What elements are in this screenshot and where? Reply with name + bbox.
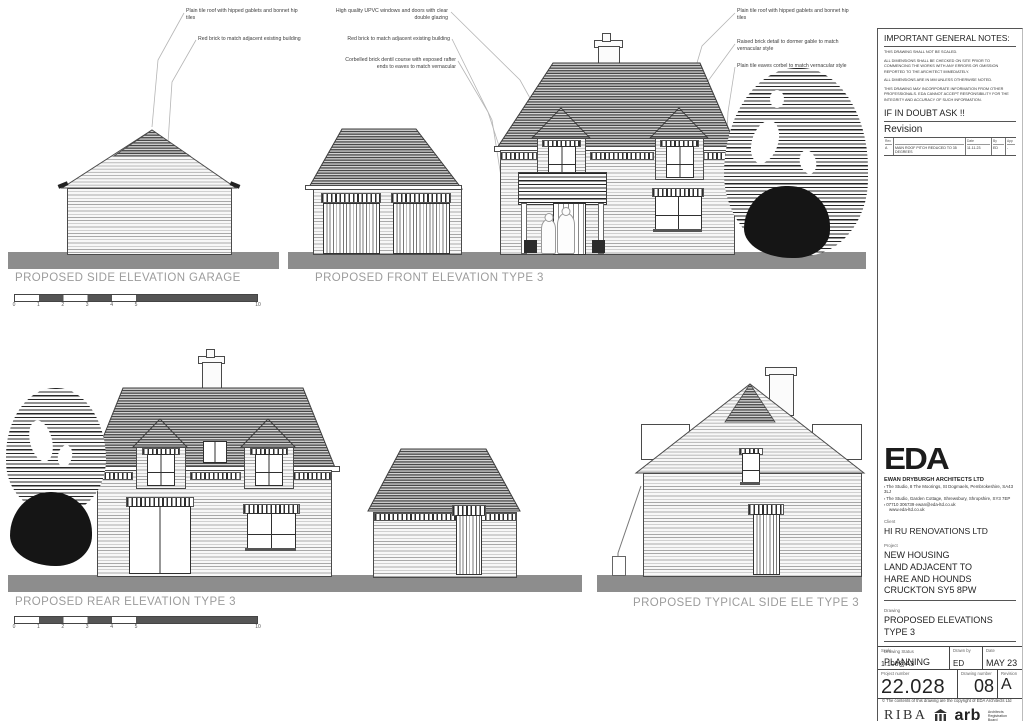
revision-value-app: - bbox=[1007, 146, 1008, 150]
scale-tick: 2 bbox=[61, 302, 64, 308]
revision-header-description bbox=[895, 139, 964, 145]
garage-door-lintel-right bbox=[391, 193, 451, 203]
scale-tick: 5 bbox=[135, 624, 138, 630]
firm-website: www.eda-ltd.co.uk bbox=[889, 507, 1016, 512]
note-item: THIS DRAWING MAY INCORPORATE INFORMATION… bbox=[884, 87, 1016, 104]
arb-logo: arb bbox=[954, 707, 980, 721]
revision-value: A bbox=[1001, 676, 1012, 693]
general-notes-section: IMPORTANT GENERAL NOTES: THIS DRAWING SH… bbox=[878, 29, 1022, 156]
firm-address-2: The Studio, Garden Cottage, Shrewsbury, … bbox=[884, 496, 1016, 501]
side-window-sill bbox=[740, 482, 760, 485]
scale-tick: 10 bbox=[255, 624, 261, 630]
dormer-roof-left bbox=[530, 106, 592, 140]
side-door bbox=[753, 514, 780, 575]
scale-label: Scale bbox=[881, 648, 946, 653]
title-block: IMPORTANT GENERAL NOTES: THIS DRAWING SH… bbox=[877, 28, 1023, 721]
note-item: ALL DIMENSIONS ARE IN MM UNLESS OTHERWIS… bbox=[884, 78, 1016, 84]
if-in-doubt-note: IF IN DOUBT ASK !! bbox=[884, 108, 1016, 122]
ground-bar-side bbox=[597, 575, 862, 592]
annotation-roof-house: Plain tile roof with hipped gablets and … bbox=[737, 8, 855, 22]
label-front-elevation: PROPOSED FRONT ELEVATION TYPE 3 bbox=[315, 272, 544, 284]
garage-gablet-roof bbox=[60, 128, 238, 190]
annotation-upvc-windows: High quality UPVC windows and doors with… bbox=[330, 8, 448, 22]
riba-crest-icon bbox=[934, 709, 947, 721]
revision-table: Rev A MAIN ROOF PITCH REDUCED TO 35 DEGR… bbox=[884, 138, 1016, 156]
annotation-brick-garage: Red brick to match adjacent existing bui… bbox=[198, 36, 323, 43]
scale-tick: 0 bbox=[13, 302, 16, 308]
drawing-number-cell: Drawing number 08 bbox=[958, 670, 998, 698]
revision-title: Revision bbox=[884, 122, 1016, 138]
planter-right bbox=[592, 240, 605, 253]
drawing-label: Drawing bbox=[884, 608, 1016, 613]
scale-tick: 4 bbox=[110, 302, 113, 308]
project-label: Project bbox=[884, 543, 1016, 548]
drawing-sheet: Plain tile roof with hipped gablets and … bbox=[0, 0, 1024, 721]
revision-header-by: By bbox=[993, 139, 1004, 145]
scale-bar bbox=[14, 294, 258, 302]
scale-value: 1:100@A3 bbox=[881, 661, 914, 668]
rear-dormer-window-left bbox=[147, 454, 175, 486]
date-cell: Date MAY 23 bbox=[983, 647, 1022, 670]
garage-side-wall bbox=[67, 188, 232, 255]
scale-tick: 1 bbox=[37, 302, 40, 308]
project-number-cell: Project number 22.028 bbox=[878, 670, 958, 698]
scale-tick: 3 bbox=[86, 624, 89, 630]
scale-row: Scale 1:100@A3 Drawn by ED Date MAY 23 bbox=[878, 646, 1022, 670]
window-sill bbox=[653, 229, 702, 232]
rear-window-sill bbox=[245, 548, 296, 551]
porch-pedestal bbox=[612, 556, 626, 576]
annotation-roof-garage: Plain tile roof with hipped gablets and … bbox=[186, 8, 304, 22]
revision-header-app: App bbox=[1007, 139, 1015, 145]
date-label: Date bbox=[986, 648, 1019, 653]
revision-cell-date: Date 11.11.23 bbox=[966, 138, 992, 155]
scale-tick: 3 bbox=[86, 302, 89, 308]
revision-cell-app: App - bbox=[1006, 138, 1016, 155]
chimney-pot bbox=[602, 33, 611, 42]
project-number-value: 22.028 bbox=[881, 676, 945, 698]
note-item: ALL DIMENSIONS SHALL BE CHECKED ON SITE … bbox=[884, 59, 1016, 76]
porch-canopy bbox=[518, 172, 607, 205]
revision-cell-description: MAIN ROOF PITCH REDUCED TO 35 DEGREES bbox=[894, 138, 966, 155]
scale-bar-top: 0 1 2 3 4 5 10 bbox=[14, 294, 258, 312]
eaves-dentil-left bbox=[500, 152, 537, 160]
rear-rooflight-window bbox=[203, 441, 227, 463]
label-side-elevation-garage: PROPOSED SIDE ELEVATION GARAGE bbox=[15, 272, 241, 284]
planter-left bbox=[524, 240, 537, 253]
note-item: THIS DRAWING SHALL NOT BE SCALED. bbox=[884, 50, 1016, 56]
label-rear-elevation: PROPOSED REAR ELEVATION TYPE 3 bbox=[15, 596, 236, 608]
dormer-window-right bbox=[666, 146, 694, 178]
dormer-roof-right bbox=[648, 106, 710, 140]
rear-eaves-dentil-mid bbox=[190, 472, 241, 480]
small-garage-door bbox=[456, 515, 482, 575]
firm-address-1: The Studio, 8 The Moorings, St Dogmaels,… bbox=[884, 484, 1016, 494]
revision-cell-rev: Rev A bbox=[884, 138, 894, 155]
label-typical-side-elevation: PROPOSED TYPICAL SIDE ELE TYPE 3 bbox=[633, 597, 859, 609]
ground-floor-window bbox=[655, 196, 702, 231]
revision-cell: Revision A bbox=[998, 670, 1022, 698]
eda-logo: EDA bbox=[884, 445, 1016, 472]
tree-branch-gap bbox=[770, 90, 784, 108]
scale-cell: Scale 1:100@A3 bbox=[878, 647, 950, 670]
rear-dormer-roof-right bbox=[239, 417, 297, 449]
person-figure-2 bbox=[557, 213, 575, 254]
firm-name: EWAN DRYBURGH ARCHITECTS LTD bbox=[884, 477, 1016, 483]
revision-value-description: MAIN ROOF PITCH REDUCED TO 35 DEGREES bbox=[895, 146, 957, 154]
scale-bar-bottom: 0 1 2 3 4 5 10 bbox=[14, 616, 258, 634]
scale-tick: 0 bbox=[13, 624, 16, 630]
scale-tick: 10 bbox=[255, 302, 261, 308]
revision-header-date: Date bbox=[967, 139, 990, 145]
revision-value-date: 11.11.23 bbox=[967, 146, 980, 150]
arb-caption: Architects Registration Board bbox=[988, 710, 1007, 721]
french-doors bbox=[129, 506, 191, 574]
project-name: NEW HOUSING LAND ADJACENT TO HARE AND HO… bbox=[884, 550, 1016, 601]
drawn-by-label: Drawn by bbox=[953, 648, 979, 653]
number-row: Project number 22.028 Drawing number 08 … bbox=[878, 669, 1022, 699]
scale-tick: 5 bbox=[135, 302, 138, 308]
small-garage-dentil bbox=[374, 513, 516, 521]
revision-cell-by: By ED bbox=[992, 138, 1006, 155]
drawing-name: PROPOSED ELEVATIONS TYPE 3 bbox=[884, 615, 1016, 642]
scale-tick: 4 bbox=[110, 624, 113, 630]
garage-door-lintel-left bbox=[321, 193, 381, 203]
riba-logo: RIBA bbox=[884, 708, 927, 721]
rear-eaves-dentil-right bbox=[293, 472, 331, 480]
revision-header-rev: Rev bbox=[885, 139, 892, 145]
revision-value-rev: A bbox=[885, 146, 887, 150]
annotation-dormer-brick: Raised brick detail to dormer gable to m… bbox=[737, 39, 859, 53]
scale-bar bbox=[14, 616, 258, 624]
annotation-brick-house: Red brick to match adjacent existing bui… bbox=[328, 36, 450, 43]
drawn-by-value: ED bbox=[953, 659, 964, 668]
drawn-by-cell: Drawn by ED bbox=[950, 647, 983, 670]
client-name: HI RU RENOVATIONS LTD bbox=[884, 526, 1016, 536]
small-garage-wall bbox=[373, 512, 517, 578]
client-label: Client bbox=[884, 519, 1016, 524]
notes-title: IMPORTANT GENERAL NOTES: bbox=[884, 33, 1016, 47]
revision-value-by: ED bbox=[993, 146, 998, 150]
firm-section: EDA EWAN DRYBURGH ARCHITECTS LTD The Stu… bbox=[884, 445, 1016, 667]
scale-tick: 2 bbox=[61, 624, 64, 630]
garage-hipped-roof bbox=[306, 127, 464, 191]
annotation-dentil-course: Corbelled brick dentil course with expos… bbox=[334, 57, 456, 71]
logos-row: RIBA arb Architects Registration Board bbox=[884, 707, 1018, 721]
rear-chimney-pot bbox=[206, 349, 215, 358]
tree-bush bbox=[744, 186, 830, 258]
rear-ground-window bbox=[247, 513, 296, 550]
rear-dormer-window-right bbox=[255, 454, 283, 486]
small-garage-roof bbox=[366, 447, 522, 513]
scale-tick: 1 bbox=[37, 624, 40, 630]
eaves-dentil-mid bbox=[590, 152, 654, 160]
rear-dormer-roof-left bbox=[131, 417, 189, 449]
copyright-note: © The contents of this drawing are the c… bbox=[882, 698, 1018, 703]
side-first-floor-window bbox=[742, 453, 760, 484]
person-figure-1 bbox=[541, 219, 556, 254]
date-value: MAY 23 bbox=[986, 658, 1017, 668]
drawing-number-value: 08 bbox=[961, 676, 994, 697]
rear-tree-bush bbox=[10, 492, 92, 566]
garage-door-right bbox=[393, 203, 450, 254]
garage-door-left bbox=[323, 203, 380, 254]
